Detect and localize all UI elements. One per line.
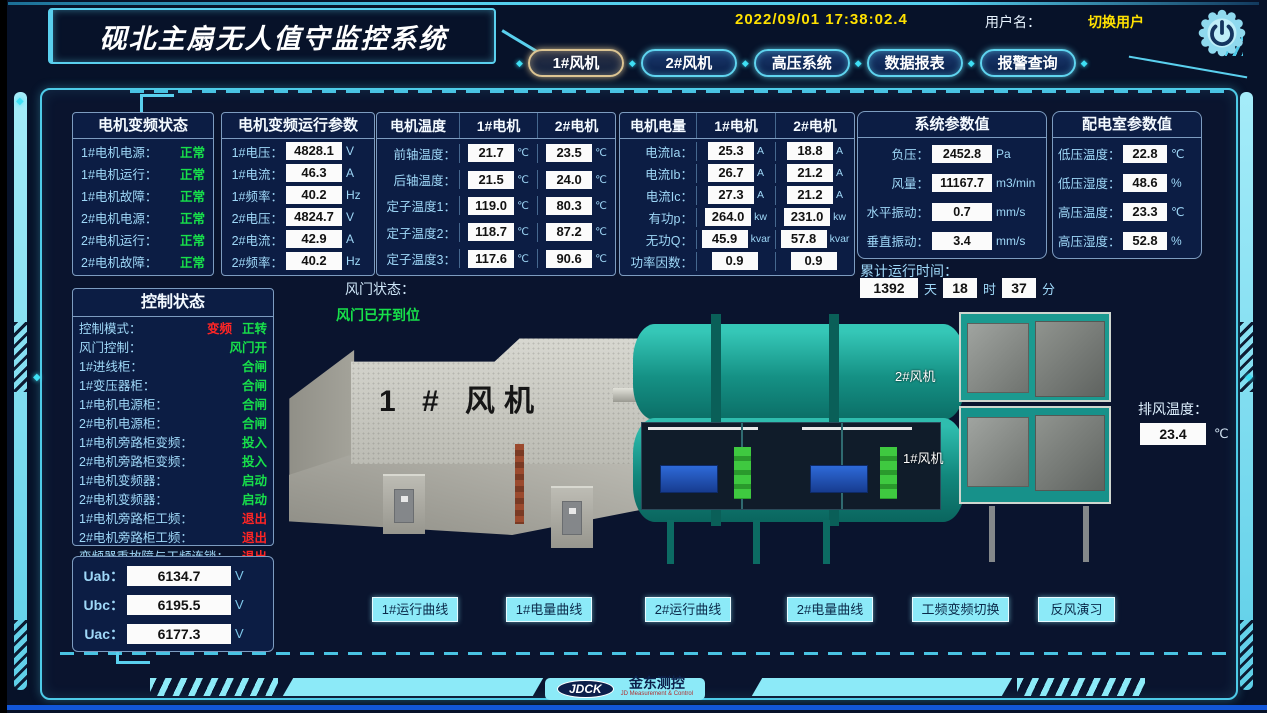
value-box: 57.8: [781, 230, 827, 248]
status-value: 正常: [180, 208, 205, 227]
tab-separator-diamond: ◆: [629, 58, 636, 69]
header-corner-line: [1129, 56, 1248, 79]
param-unit: Hz: [346, 254, 361, 268]
switch-user-button[interactable]: 切换用户: [1088, 12, 1144, 32]
value-box: 87.2: [546, 223, 592, 241]
value-unit: ℃: [517, 226, 529, 238]
param-label: 高压湿度：: [1058, 231, 1120, 250]
status-label: 1#电机运行：: [81, 164, 157, 183]
footer-stripes: [1017, 678, 1145, 696]
table-header: 电机电量1#电机2#电机: [620, 113, 854, 139]
value-unit: kw: [833, 211, 846, 223]
value-unit: ℃: [595, 226, 607, 238]
system-params-rows: 负压：2452.8Pa风量：11167.7m3/min水平振动：0.7mm/s垂…: [858, 139, 1046, 255]
table-header-cell: 电机电量: [620, 113, 696, 138]
value-box: 48.6: [1123, 174, 1167, 192]
status-label: 2#电机旁路柜工频：: [79, 527, 193, 546]
param-label: 1#电流：: [227, 164, 283, 183]
tab-高压系统[interactable]: 高压系统: [754, 49, 850, 77]
value-box: 11167.7: [932, 174, 992, 192]
duct1-label: 1#风机: [903, 448, 943, 467]
param-unit: V: [346, 210, 354, 224]
status-values: 退出: [242, 508, 267, 527]
table-header-cell: 电机温度: [377, 113, 459, 138]
status-values: 正常: [180, 186, 205, 205]
param-row: Uac：6177.3V: [73, 624, 273, 644]
button-2#运行曲线[interactable]: 2#运行曲线: [645, 597, 731, 622]
param-label: 低压温度：: [1058, 144, 1120, 163]
param-unit: %: [1171, 234, 1182, 248]
status-value: 正常: [180, 252, 205, 271]
param-unit: %: [1171, 176, 1182, 190]
table-row: 电流Ic：27.3A21.2A: [620, 186, 854, 205]
param-row: 低压湿度：48.6%: [1053, 173, 1201, 192]
status-row: 风门控制：风门开: [73, 337, 273, 356]
status-row: 1#电机旁路柜变频：投入: [73, 432, 273, 451]
value-cell-2: 80.3℃: [537, 196, 615, 215]
tab-2#风机[interactable]: 2#风机: [641, 49, 737, 77]
duct-leg: [667, 520, 674, 564]
value-box: 4828.1: [286, 142, 342, 160]
value-unit: A: [757, 167, 764, 179]
value-box: 21.2: [787, 164, 833, 182]
fan-diagram: 1 # 风机: [283, 310, 1115, 598]
value-box: 6177.3: [127, 624, 231, 644]
impeller-stack: [734, 447, 751, 499]
left-black-edge: [0, 0, 7, 713]
status-values: 投入: [242, 432, 267, 451]
line-voltage-rows: Uab：6134.7VUbc：6195.5VUac：6177.3V: [73, 561, 273, 648]
param-unit: m3/min: [996, 176, 1035, 190]
value-unit: A: [836, 145, 843, 157]
status-row: 1#电机运行：正常: [73, 164, 213, 183]
access-door-2: [551, 486, 593, 548]
status-value: 启动: [242, 470, 267, 489]
status-label: 1#电机电源：: [81, 142, 157, 161]
diamond-dot: ◆: [16, 96, 24, 107]
status-value: 正常: [180, 142, 205, 161]
value-box: 22.8: [1123, 145, 1167, 163]
scada-page: 砚北主扇无人值守监控系统 2022/09/01 17:38:02.4 用户名： …: [0, 0, 1267, 713]
panel-motor-power: 电机电量1#电机2#电机 电流Ia：25.3A18.8A电流Ib：26.7A21…: [619, 112, 855, 276]
tab-数据报表[interactable]: 数据报表: [867, 49, 963, 77]
value-box: 117.6: [468, 250, 514, 268]
param-label: 水平振动：: [863, 202, 929, 221]
diffuser-panel: [1035, 321, 1105, 397]
row-label: 电流Ic：: [620, 186, 696, 205]
tab-separator-diamond: ◆: [855, 58, 862, 69]
motor-bay: [641, 422, 941, 510]
button-1#电量曲线[interactable]: 1#电量曲线: [506, 597, 592, 622]
value-cell-1: 21.5℃: [459, 170, 537, 189]
status-label: 1#电机变频器：: [79, 470, 168, 489]
param-row: 2#电流：42.9A: [222, 230, 374, 249]
param-label: 风量：: [863, 173, 929, 192]
dashed-line-bottom: [60, 652, 1230, 655]
value-box: 24.0: [546, 171, 592, 189]
status-label: 1#电机旁路柜工频：: [79, 508, 193, 527]
footer-logo-pill: JDCK 金东测控 JD Measurement & Control: [545, 678, 705, 700]
value-box: 52.8: [1123, 232, 1167, 250]
param-row: Ubc：6195.5V: [73, 595, 273, 615]
brand-subtitle: JD Measurement & Control: [621, 689, 693, 700]
value-cell-1: 26.7A: [696, 164, 775, 183]
runtime-hours-unit: 时: [983, 279, 996, 298]
table-header: 电机温度1#电机2#电机: [377, 113, 615, 139]
row-label: 定子温度1：: [377, 196, 459, 215]
status-values: 风门开: [229, 337, 267, 356]
status-value: 合闸: [242, 375, 267, 394]
value-box: 0.9: [791, 252, 837, 270]
value-box: 3.4: [932, 232, 992, 250]
param-row: 水平振动：0.7mm/s: [858, 202, 1046, 221]
control-status-rows: 控制模式：变频正转风门控制：风门开1#进线柜：合闸1#变压器柜：合闸1#电机电源…: [73, 318, 273, 542]
status-value: 正常: [180, 164, 205, 183]
footer-bar: JDCK 金东测控 JD Measurement & Control: [52, 676, 1232, 698]
status-values: 退出: [242, 527, 267, 546]
value-cell-2: 87.2℃: [537, 223, 615, 242]
status-value: 合闸: [242, 356, 267, 375]
diffuser-panel: [1035, 415, 1105, 491]
value-box: 0.7: [932, 203, 992, 221]
panel-title: 电机变频状态: [73, 113, 213, 139]
param-label: 1#电压：: [227, 142, 283, 161]
access-door-1: [383, 474, 425, 534]
motor-temp-rows: 前轴温度：21.7℃23.5℃后轴温度：21.5℃24.0℃定子温度1：119.…: [377, 140, 615, 272]
status-value: 正常: [180, 230, 205, 249]
value-box: 0.9: [712, 252, 758, 270]
status-row: 1#电机电源：正常: [73, 142, 213, 161]
param-label: 2#电流：: [227, 230, 283, 249]
value-unit: ℃: [517, 253, 529, 265]
table-header-cell: 2#电机: [537, 113, 615, 138]
param-label: 1#频率：: [227, 186, 283, 205]
status-label: 风门控制：: [79, 337, 142, 356]
status-row: 2#电机变频器：启动: [73, 489, 273, 508]
param-row: 低压温度：22.8℃: [1053, 144, 1201, 163]
status-label: 1#电机故障：: [81, 186, 157, 205]
value-box: 23.5: [546, 144, 592, 162]
damper-status-label: 风门状态：: [345, 279, 415, 299]
status-row: 2#电机旁路柜工频：退出: [73, 527, 273, 546]
param-unit: ℃: [1171, 205, 1184, 219]
param-unit: A: [346, 166, 354, 180]
status-value: 启动: [242, 489, 267, 508]
status-values: 正常: [180, 230, 205, 249]
status-value: 风门开: [229, 337, 267, 356]
status-values: 合闸: [242, 356, 267, 375]
button-2#电量曲线[interactable]: 2#电量曲线: [787, 597, 873, 622]
page-title: 砚北主扇无人值守监控系统: [100, 17, 448, 56]
value-cell-1: 117.6℃: [459, 249, 537, 268]
status-row: 1#电机电源柜：合闸: [73, 394, 273, 413]
runtime-minutes-unit: 分: [1042, 279, 1055, 298]
param-row: 2#频率：40.2Hz: [222, 252, 374, 271]
status-value: 退出: [242, 527, 267, 546]
value-cell-1: 21.7℃: [459, 144, 537, 163]
table-row: 功率因数：0.90.9: [620, 252, 854, 271]
table-row: 无功Q：45.9kvar57.8kvar: [620, 230, 854, 249]
decor-stripe: [14, 322, 27, 392]
value-unit: A: [757, 145, 764, 157]
button-工频变频切换[interactable]: 工频变频切换: [912, 597, 1009, 622]
row-label: 前轴温度：: [377, 144, 459, 163]
value-cell-1: 118.7℃: [459, 223, 537, 242]
table-header-cell: 1#电机: [459, 113, 537, 138]
value-unit: ℃: [517, 200, 529, 212]
table-row: 定子温度2：118.7℃87.2℃: [377, 223, 615, 242]
status-label: 2#电机运行：: [81, 230, 157, 249]
value-box: 2452.8: [932, 145, 992, 163]
param-unit: ℃: [1171, 147, 1184, 161]
value-box: 40.2: [286, 186, 342, 204]
value-box: 18.8: [787, 142, 833, 160]
panel-motor-temperature: 电机温度1#电机2#电机 前轴温度：21.7℃23.5℃后轴温度：21.5℃24…: [376, 112, 616, 276]
motor-power-rows: 电流Ia：25.3A18.8A电流Ib：26.7A21.2A电流Ic：27.3A…: [620, 140, 854, 272]
tab-separator-diamond: ◆: [1081, 58, 1088, 69]
value-box: 4824.7: [286, 208, 342, 226]
diffuser-panel: [967, 417, 1029, 487]
param-unit: mm/s: [996, 234, 1025, 248]
left-decor-bar: [14, 92, 27, 690]
button-1#运行曲线[interactable]: 1#运行曲线: [372, 597, 458, 622]
power-icon[interactable]: [1196, 7, 1248, 59]
status-values: 启动: [242, 489, 267, 508]
row-label: 功率因数：: [620, 252, 696, 271]
value-box: 26.7: [708, 164, 754, 182]
diffuser-panel: [967, 323, 1029, 393]
username-label: 用户名：: [985, 12, 1041, 32]
param-label: 2#频率：: [227, 252, 283, 271]
status-values: 变频正转: [207, 318, 267, 337]
tab-报警查询[interactable]: 报警查询: [980, 49, 1076, 77]
status-values: 投入: [242, 451, 267, 470]
datetime-display: 2022/09/01 17:38:02.4: [735, 11, 908, 28]
value-unit: kvar: [830, 233, 850, 245]
status-value: 投入: [242, 451, 267, 470]
bottom-button-row: 1#运行曲线1#电量曲线2#运行曲线2#电量曲线工频变频切换反风演习: [370, 597, 1120, 622]
value-cell-1: 45.9kvar: [696, 230, 775, 249]
value-box: 6134.7: [127, 566, 231, 586]
value-unit: ℃: [595, 174, 607, 186]
status-row: 2#电机电源柜：合闸: [73, 413, 273, 432]
status-row: 控制模式：变频正转: [73, 318, 273, 337]
status-label: 1#电机旁路柜变频：: [79, 432, 193, 451]
diffuser-leg: [989, 506, 995, 562]
panel-line-voltage: Uab：6134.7VUbc：6195.5VUac：6177.3V: [72, 556, 274, 652]
status-value: 合闸: [242, 413, 267, 432]
value-box: 80.3: [546, 197, 592, 215]
table-row: 定子温度3：117.6℃90.6℃: [377, 249, 615, 268]
value-box: 25.3: [708, 142, 754, 160]
value-box: 46.3: [286, 164, 342, 182]
header-top-line: [8, 2, 1259, 5]
status-label: 1#进线柜：: [79, 356, 143, 375]
diffuser-leg: [1083, 506, 1089, 562]
param-row: 垂直振动：3.4mm/s: [858, 231, 1046, 250]
tab-separator-diamond: ◆: [968, 58, 975, 69]
param-unit: A: [346, 232, 354, 246]
status-values: 正常: [180, 164, 205, 183]
diamond-dot: ◆: [33, 372, 41, 383]
panel-vfd-params: 电机变频运行参数 1#电压：4828.1V1#电流：46.3A1#频率：40.2…: [221, 112, 375, 276]
value-unit: ℃: [595, 147, 607, 159]
duct-leg: [823, 520, 830, 564]
duct-leg: [753, 520, 760, 564]
footer-stripes: [150, 678, 278, 696]
runtime-row: 1392 天 18 时 37 分: [860, 278, 1055, 298]
status-value: 变频: [207, 318, 232, 337]
value-cell-2: 57.8kvar: [775, 230, 854, 249]
value-cell-2: 231.0kw: [775, 208, 854, 227]
panel-title: 系统参数值: [858, 112, 1046, 138]
panel-title: 配电室参数值: [1053, 112, 1201, 138]
row-label: 电流Ia：: [620, 142, 696, 161]
param-unit: V: [235, 568, 244, 583]
value-unit: ℃: [517, 147, 529, 159]
status-values: 合闸: [242, 375, 267, 394]
param-row: 高压湿度：52.8%: [1053, 231, 1201, 250]
status-values: 合闸: [242, 413, 267, 432]
value-cell-1: 264.0kw: [696, 208, 775, 227]
status-label: 2#电机电源柜：: [79, 413, 168, 432]
value-box: 21.7: [468, 144, 514, 162]
status-row: 1#电机故障：正常: [73, 186, 213, 205]
value-box: 21.5: [468, 171, 514, 189]
status-row: 1#进线柜：合闸: [73, 356, 273, 375]
tab-separator-diamond: ◆: [742, 58, 749, 69]
param-row: Uab：6134.7V: [73, 566, 273, 586]
decor-stripe: [1240, 620, 1253, 690]
param-unit: Pa: [996, 147, 1011, 161]
status-values: 合闸: [242, 394, 267, 413]
door-window: [401, 496, 408, 502]
param-unit: V: [346, 144, 354, 158]
value-box: 40.2: [286, 252, 342, 270]
status-label: 1#电机电源柜：: [79, 394, 168, 413]
status-values: 正常: [180, 142, 205, 161]
duct2-label: 2#风机: [895, 366, 935, 385]
row-label: 无功Q：: [620, 230, 696, 249]
status-value: 投入: [242, 432, 267, 451]
panel-title: 控制状态: [73, 289, 273, 317]
door: [394, 489, 414, 523]
tab-1#风机[interactable]: 1#风机: [528, 49, 624, 77]
table-row: 电流Ia：25.3A18.8A: [620, 142, 854, 161]
status-row: 2#电机运行：正常: [73, 230, 213, 249]
row-label: 有功p：: [620, 208, 696, 227]
housing-label: 1 # 风机: [379, 376, 543, 420]
motor-block: [810, 465, 868, 493]
status-label: 2#电机故障：: [81, 252, 157, 271]
row-label: 定子温度3：: [377, 249, 459, 268]
value-box: 264.0: [705, 208, 751, 226]
status-value: 正转: [242, 318, 267, 337]
nav-tabs: ◆1#风机◆2#风机◆高压系统◆数据报表◆报警查询◆: [516, 48, 1088, 78]
value-cell-1: 27.3A: [696, 186, 775, 205]
status-label: 2#电机电源：: [81, 208, 157, 227]
motor-block: [660, 465, 718, 493]
status-row: 1#变压器柜：合闸: [73, 375, 273, 394]
param-row: 风量：11167.7m3/min: [858, 173, 1046, 192]
title-box: 砚北主扇无人值守监控系统: [48, 8, 496, 64]
value-box: 27.3: [708, 186, 754, 204]
runtime-days-value: 1392: [860, 278, 918, 298]
row-label: 定子温度2：: [377, 223, 459, 242]
panel-title: 电机变频运行参数: [222, 113, 374, 139]
runtime-minutes-value: 37: [1002, 278, 1036, 298]
value-box: 119.0: [468, 197, 514, 215]
brand-text: 金东测控 JD Measurement & Control: [621, 678, 693, 700]
param-label: 高压温度：: [1058, 202, 1120, 221]
exhaust-temp-unit: ℃: [1214, 426, 1229, 442]
table-row: 后轴温度：21.5℃24.0℃: [377, 170, 615, 189]
exhaust-temp-value: 23.4: [1140, 423, 1206, 445]
exhaust-temp-label: 排风温度：: [1138, 399, 1208, 419]
status-value: 退出: [242, 508, 267, 527]
table-row: 电流Ib：26.7A21.2A: [620, 164, 854, 183]
value-cell-2: 18.8A: [775, 142, 854, 161]
status-label: 2#电机旁路柜变频：: [79, 451, 193, 470]
vfd-params-rows: 1#电压：4828.1V1#电流：46.3A1#频率：40.2Hz2#电压：48…: [222, 140, 374, 272]
param-unit: V: [235, 626, 244, 641]
value-cell-2: 24.0℃: [537, 170, 615, 189]
panel-system-params: 系统参数值 负压：2452.8Pa风量：11167.7m3/min水平振动：0.…: [857, 111, 1047, 259]
value-box: 23.3: [1123, 203, 1167, 221]
value-unit: ℃: [595, 200, 607, 212]
param-label: 2#电压：: [227, 208, 283, 227]
table-row: 有功p：264.0kw231.0kw: [620, 208, 854, 227]
value-unit: A: [836, 167, 843, 179]
value-cell-1: 25.3A: [696, 142, 775, 161]
diamond-dot: ◆: [1245, 372, 1253, 383]
row-label: 后轴温度：: [377, 170, 459, 189]
status-label: 2#电机变频器：: [79, 489, 168, 508]
value-box: 21.2: [787, 186, 833, 204]
dist-room-rows: 低压温度：22.8℃低压湿度：48.6%高压温度：23.3℃高压湿度：52.8%: [1053, 139, 1201, 255]
param-row: 负压：2452.8Pa: [858, 144, 1046, 163]
panel-vfd-status: 电机变频状态 1#电机电源：正常1#电机运行：正常1#电机故障：正常2#电机电源…: [72, 112, 214, 276]
outlet-diffuser-2: [959, 312, 1111, 402]
param-label: Ubc：: [78, 595, 124, 615]
param-unit: mm/s: [996, 205, 1025, 219]
param-label: 垂直振动：: [863, 231, 929, 250]
status-row: 1#电机变频器：启动: [73, 470, 273, 489]
button-反风演习[interactable]: 反风演习: [1038, 597, 1115, 622]
value-box: 45.9: [702, 230, 748, 248]
value-unit: kvar: [751, 233, 771, 245]
param-row: 1#电压：4828.1V: [222, 142, 374, 161]
value-cell-2: 90.6℃: [537, 249, 615, 268]
param-label: 负压：: [863, 144, 929, 163]
table-header-cell: 1#电机: [696, 113, 775, 138]
value-unit: A: [757, 189, 764, 201]
status-values: 启动: [242, 470, 267, 489]
value-cell-2: 23.5℃: [537, 144, 615, 163]
impeller-stack: [880, 447, 897, 499]
param-label: Uac：: [78, 624, 124, 644]
door: [562, 501, 582, 535]
param-label: Uab：: [78, 566, 124, 586]
panel-control-status: 控制状态 控制模式：变频正转风门控制：风门开1#进线柜：合闸1#变压器柜：合闸1…: [72, 288, 274, 546]
value-unit: kw: [754, 211, 767, 223]
status-values: 正常: [180, 252, 205, 271]
value-cell-2: 0.9: [775, 252, 854, 271]
tab-separator-diamond: ◆: [516, 58, 523, 69]
ladder-decor: [515, 444, 524, 524]
param-row: 高压温度：23.3℃: [1053, 202, 1201, 221]
runtime-days-unit: 天: [924, 279, 937, 298]
